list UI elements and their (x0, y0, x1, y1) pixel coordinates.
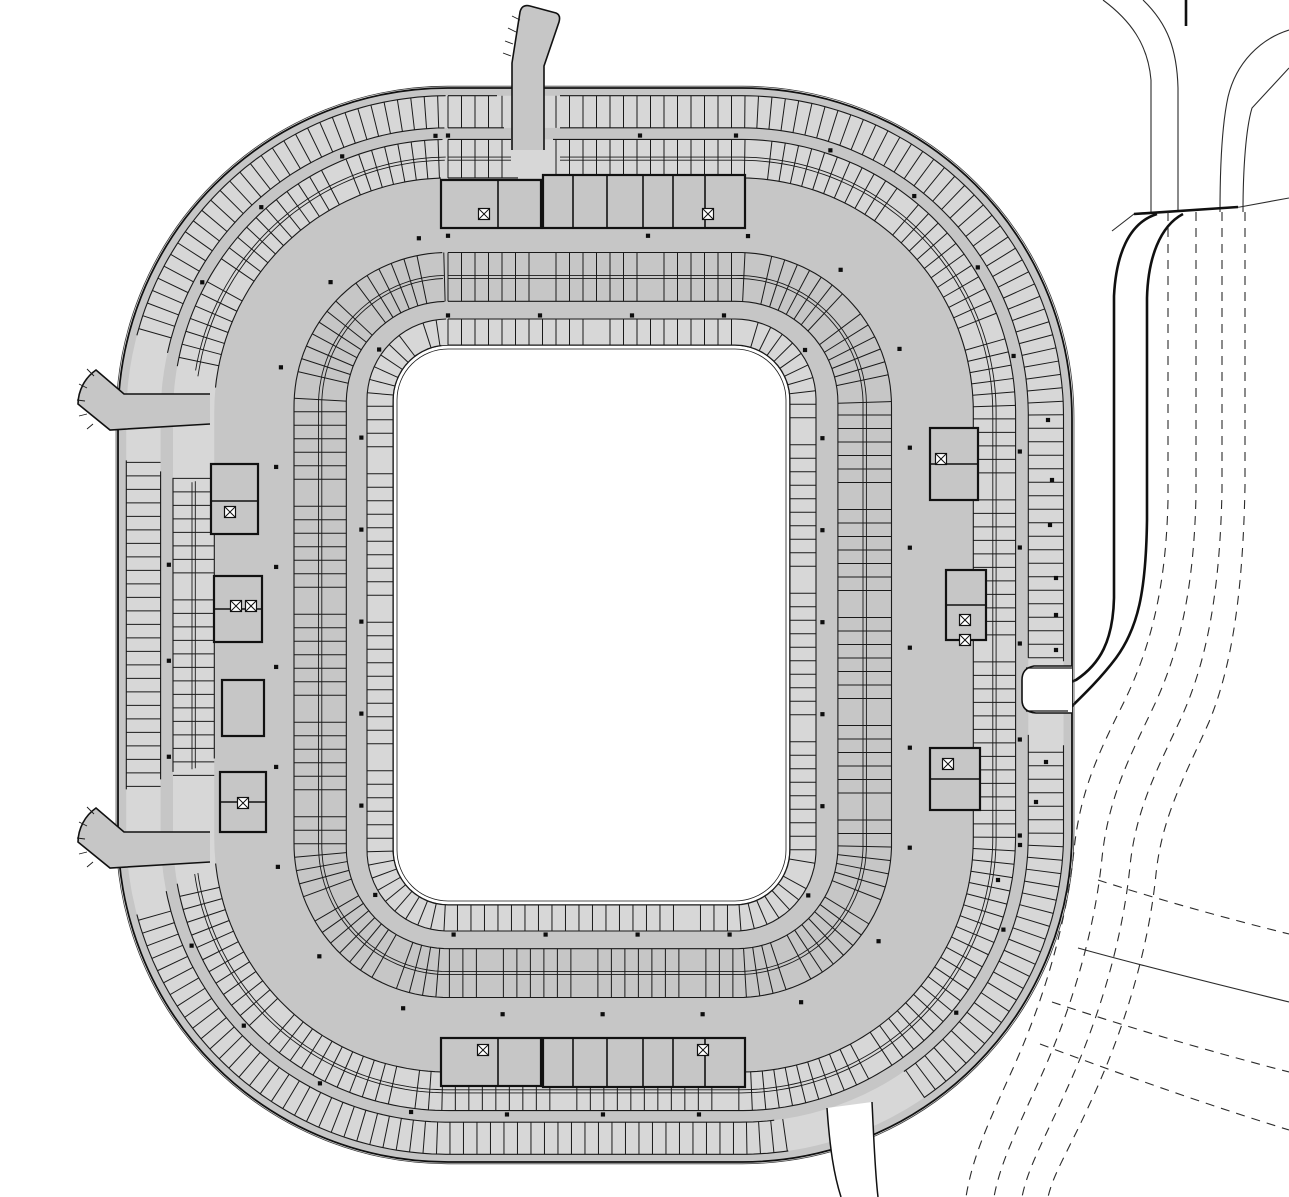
service-core (441, 180, 541, 228)
stair-icon (698, 1045, 709, 1056)
road-line-dashed (1098, 880, 1289, 934)
floor-plan-canvas (0, 0, 1289, 1197)
service-core (222, 680, 264, 736)
service-core (441, 1038, 541, 1086)
road-line (1220, 30, 1289, 212)
stair-icon (703, 209, 714, 220)
stair-icon (936, 454, 947, 465)
roadside-entry-notch (1022, 666, 1072, 713)
stair-icon (225, 507, 236, 518)
stair-icon (479, 209, 490, 220)
stair-icon (238, 798, 249, 809)
service-core (211, 464, 258, 534)
stair-icon (960, 635, 971, 646)
stair-icon (231, 601, 242, 612)
road-line (1143, 0, 1178, 212)
road-line-dashed (1040, 1044, 1289, 1130)
stair-icon (960, 615, 971, 626)
stair-icon (943, 759, 954, 770)
exit-ramp-bottom (827, 1102, 878, 1197)
road-line (1243, 68, 1289, 212)
floor-plan-svg (0, 0, 1289, 1197)
road-edge (1058, 214, 1183, 718)
central-void (393, 345, 790, 905)
road-line (1078, 948, 1289, 1002)
floor-plan-page (0, 0, 1289, 1197)
road-line (1103, 0, 1151, 212)
stair-icon (246, 601, 257, 612)
stair-icon (478, 1045, 489, 1056)
